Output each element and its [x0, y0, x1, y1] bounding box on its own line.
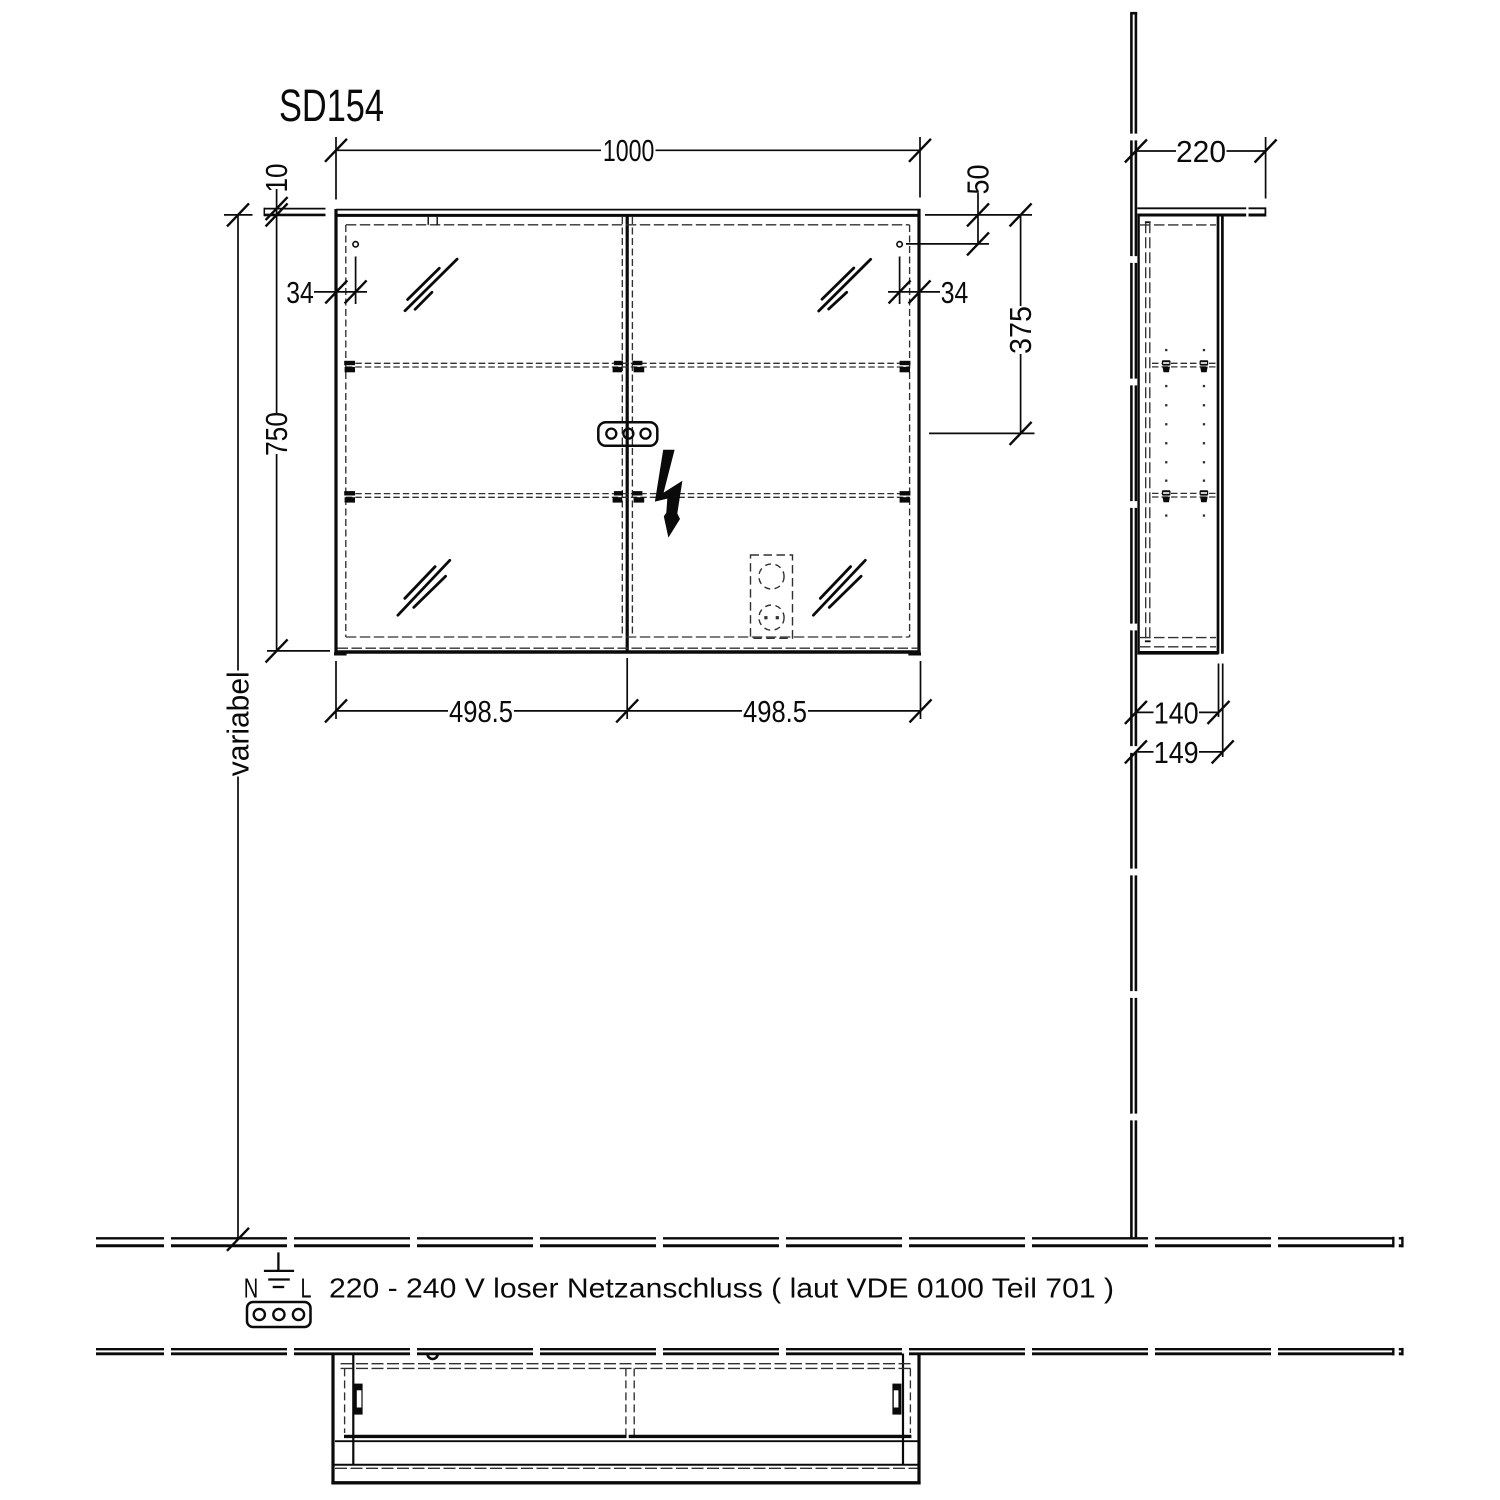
svg-text:498.5: 498.5 — [449, 695, 513, 729]
svg-text:34: 34 — [286, 276, 314, 310]
svg-text:10: 10 — [260, 164, 294, 193]
svg-text:140: 140 — [1154, 696, 1199, 730]
svg-text:SD154: SD154 — [279, 80, 384, 131]
svg-text:498.5: 498.5 — [743, 695, 807, 729]
svg-text:750: 750 — [260, 412, 294, 456]
svg-text:N: N — [244, 1273, 259, 1304]
svg-text:variabel: variabel — [221, 671, 256, 776]
svg-text:1000: 1000 — [603, 134, 655, 168]
svg-text:220 - 240 V loser Netzanschlus: 220 - 240 V loser Netzanschluss ( laut V… — [329, 1273, 1114, 1304]
svg-text:34: 34 — [941, 276, 969, 310]
svg-text:L: L — [301, 1273, 312, 1304]
svg-text:50: 50 — [962, 165, 996, 195]
svg-text:220: 220 — [1176, 135, 1226, 169]
svg-text:375: 375 — [1004, 306, 1038, 354]
svg-text:149: 149 — [1154, 736, 1199, 770]
